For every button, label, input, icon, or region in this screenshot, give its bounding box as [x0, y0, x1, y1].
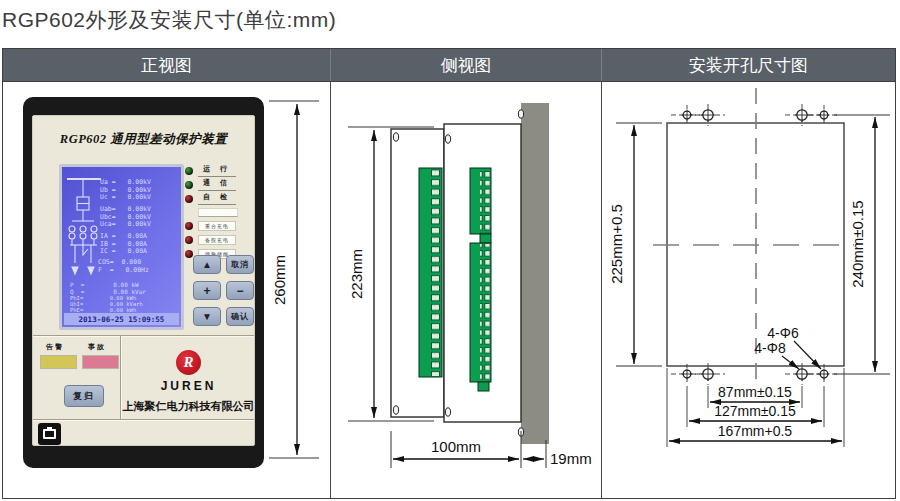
reset-button: 复归 — [64, 385, 104, 407]
led-comm: 通 信 — [185, 178, 236, 191]
device-faceplate: RGP602 通用型差动保护装置 — [32, 115, 255, 446]
hole-diameter-6-label: 4-Φ6 — [767, 325, 799, 341]
minus-button: − — [226, 281, 254, 300]
cancel-button: 取消 — [226, 255, 254, 274]
header-side-view: 侧视图 — [330, 49, 601, 81]
cutout-width-dimension: 167mm+0.5 — [718, 423, 793, 439]
side-view-panel: 223mm 100mm 19mm — [330, 82, 601, 498]
panel-flange — [521, 103, 549, 444]
terminal-block-right-upper — [470, 168, 491, 243]
fault-label: 事故 — [88, 342, 106, 352]
divider — [33, 419, 254, 420]
hole-vspacing-dimension: 240mm±0.15 — [849, 200, 866, 287]
protection-device: RGP602 通用型差动保护装置 — [23, 97, 264, 468]
table-header-row: 正视图 侧视图 安装开孔尺寸图 — [3, 49, 895, 82]
header-cutout-view: 安装开孔尺寸图 — [601, 49, 895, 81]
plus-button: + — [193, 281, 221, 300]
usb-port-icon — [38, 423, 61, 445]
brand-zone: R JUREN 上海聚仁电力科技有限公司 — [121, 335, 256, 419]
front-height-dimension: 260mm — [263, 94, 327, 486]
device-keypad: ▲ 取消 + − ▼ 确认 — [193, 255, 254, 326]
front-view-panel: RGP602 通用型差动保护装置 — [3, 82, 330, 498]
spring-led-icon — [185, 250, 193, 258]
hole-outer-spacing-dimension: 127mm±0.15 — [714, 403, 796, 419]
reclose-led-icon — [185, 222, 193, 230]
svg-text:260mm: 260mm — [271, 255, 288, 305]
lcd-screen: Ua = 0.00kVUb = 0.00kVUc = 0.00kV Uab= 0… — [59, 164, 184, 330]
lcd-datetime: 2013-06-25 15:09:55 — [64, 313, 179, 325]
header-front-view: 正视图 — [3, 49, 330, 81]
run-led-icon — [185, 167, 193, 175]
hole-inner-spacing-dimension: 87mm±0.15 — [718, 384, 792, 400]
side-flange-dimension: 19mm — [550, 450, 592, 467]
company-name: 上海聚仁电力科技有限公司 — [121, 399, 256, 414]
warn-indicator — [40, 355, 77, 369]
comm-led-icon — [185, 181, 193, 189]
backup-led-icon — [185, 236, 193, 244]
cutout-drawing: 225mm+0.5 240mm±0.15 4-Φ6 4-Φ8 — [602, 82, 895, 494]
terminal-block-left — [419, 168, 442, 377]
alarm-zone: 告警 事故 复归 — [33, 335, 120, 419]
brand-name: JUREN — [121, 379, 256, 393]
led-reclose-charge: 重合充电 — [185, 221, 236, 231]
cutout-height-dimension: 225mm+0.5 — [608, 204, 625, 284]
page-title: RGP602外形及安装尺寸(单位:mm) — [2, 6, 336, 34]
side-view-drawing: 223mm 100mm 19mm — [331, 82, 601, 494]
hole-diameter-8-label: 4-Φ8 — [754, 340, 786, 356]
down-button: ▼ — [193, 307, 221, 326]
led-backup-charge: 备投充电 — [185, 235, 236, 245]
confirm-button: 确认 — [226, 307, 254, 326]
side-height-dimension: 223mm — [348, 249, 365, 299]
led-selfcheck: 自 检 — [185, 192, 236, 205]
warn-label: 告警 — [46, 342, 64, 352]
device-title: RGP602 通用型差动保护装置 — [33, 131, 254, 148]
panel-table: 正视图 侧视图 安装开孔尺寸图 RGP602 通用型差动保护装置 — [2, 48, 896, 499]
up-button: ▲ — [193, 255, 221, 274]
fault-indicator — [82, 355, 119, 369]
lcd-readings: Ua = 0.00kVUb = 0.00kVUc = 0.00kV Uab= 0… — [62, 167, 181, 327]
selfcheck-led-icon — [185, 195, 193, 203]
cutout-panel: 225mm+0.5 240mm±0.15 4-Φ6 4-Φ8 — [601, 82, 895, 498]
juren-logo-icon: R — [176, 350, 201, 375]
side-depth-dimension: 100mm — [431, 438, 481, 455]
terminal-block-right-lower — [470, 243, 491, 391]
led-run: 运 行 — [185, 164, 236, 177]
blank-label-box — [198, 208, 238, 217]
